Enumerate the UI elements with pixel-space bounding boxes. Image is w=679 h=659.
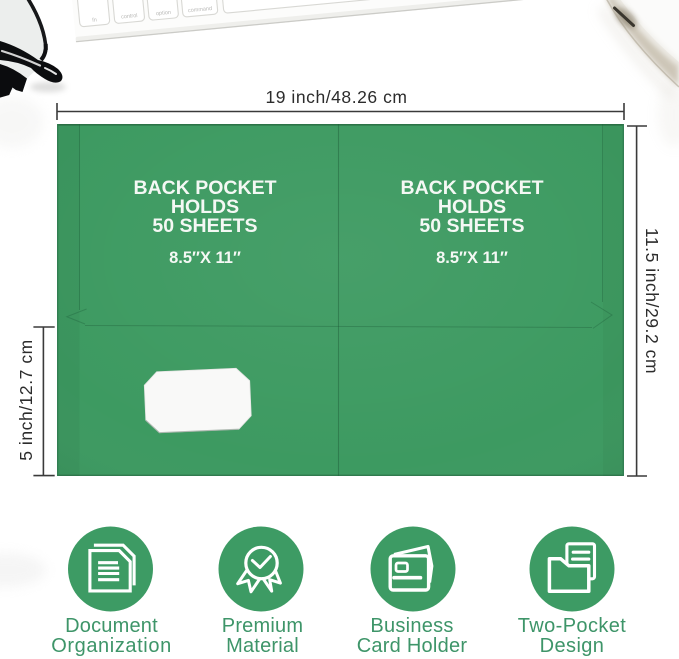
svg-text:fn: fn [92, 17, 97, 23]
